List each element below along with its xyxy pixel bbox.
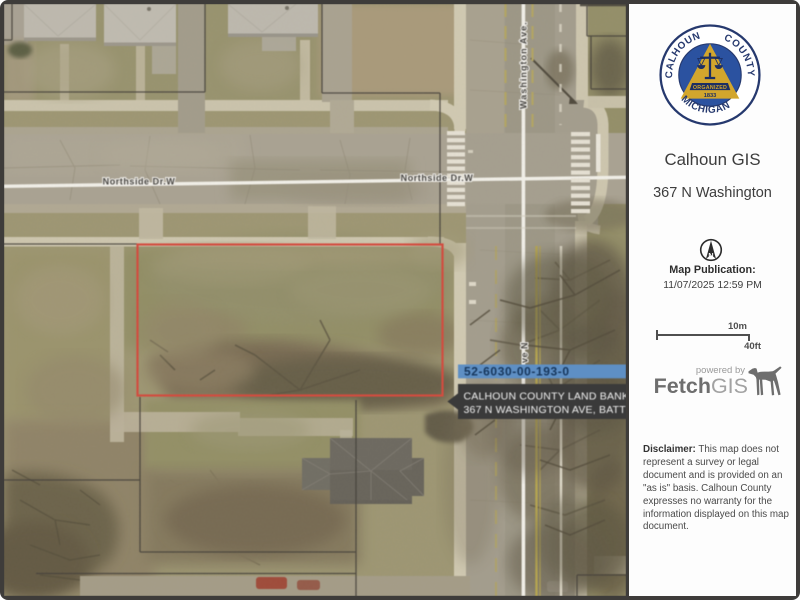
- svg-text:10m: 10m: [728, 321, 747, 332]
- svg-text:367 N WASHINGTON AVE, BATT: 367 N WASHINGTON AVE, BATT: [464, 404, 627, 416]
- svg-text:52-6030-00-193-0: 52-6030-00-193-0: [464, 365, 570, 379]
- svg-text:ORGANIZED: ORGANIZED: [693, 85, 727, 91]
- svg-text:40ft: 40ft: [744, 341, 762, 352]
- svg-text:1833: 1833: [704, 93, 717, 99]
- svg-text:CALHOUN COUNTY LAND BANK: CALHOUN COUNTY LAND BANK: [464, 391, 627, 403]
- svg-text:N: N: [708, 251, 713, 260]
